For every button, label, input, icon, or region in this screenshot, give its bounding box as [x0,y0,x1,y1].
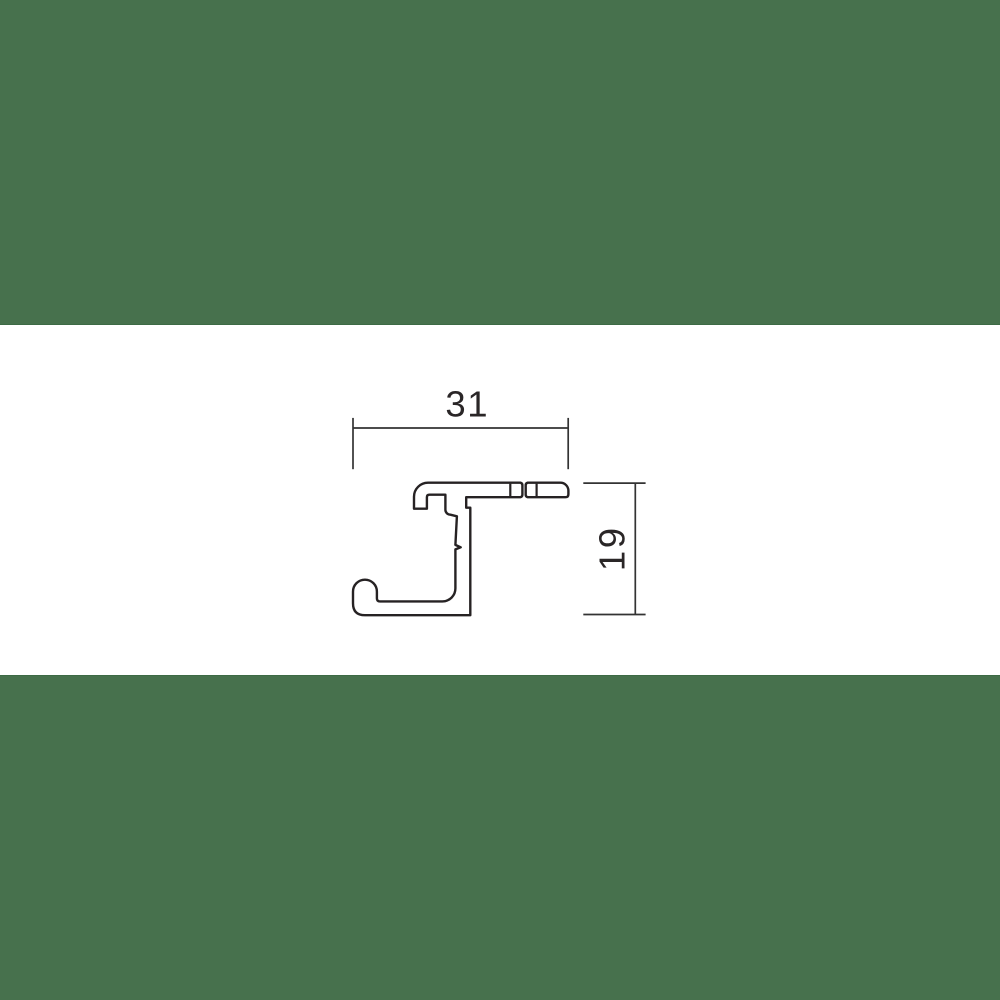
svg-text:31: 31 [445,384,489,425]
svg-text:19: 19 [592,525,633,571]
